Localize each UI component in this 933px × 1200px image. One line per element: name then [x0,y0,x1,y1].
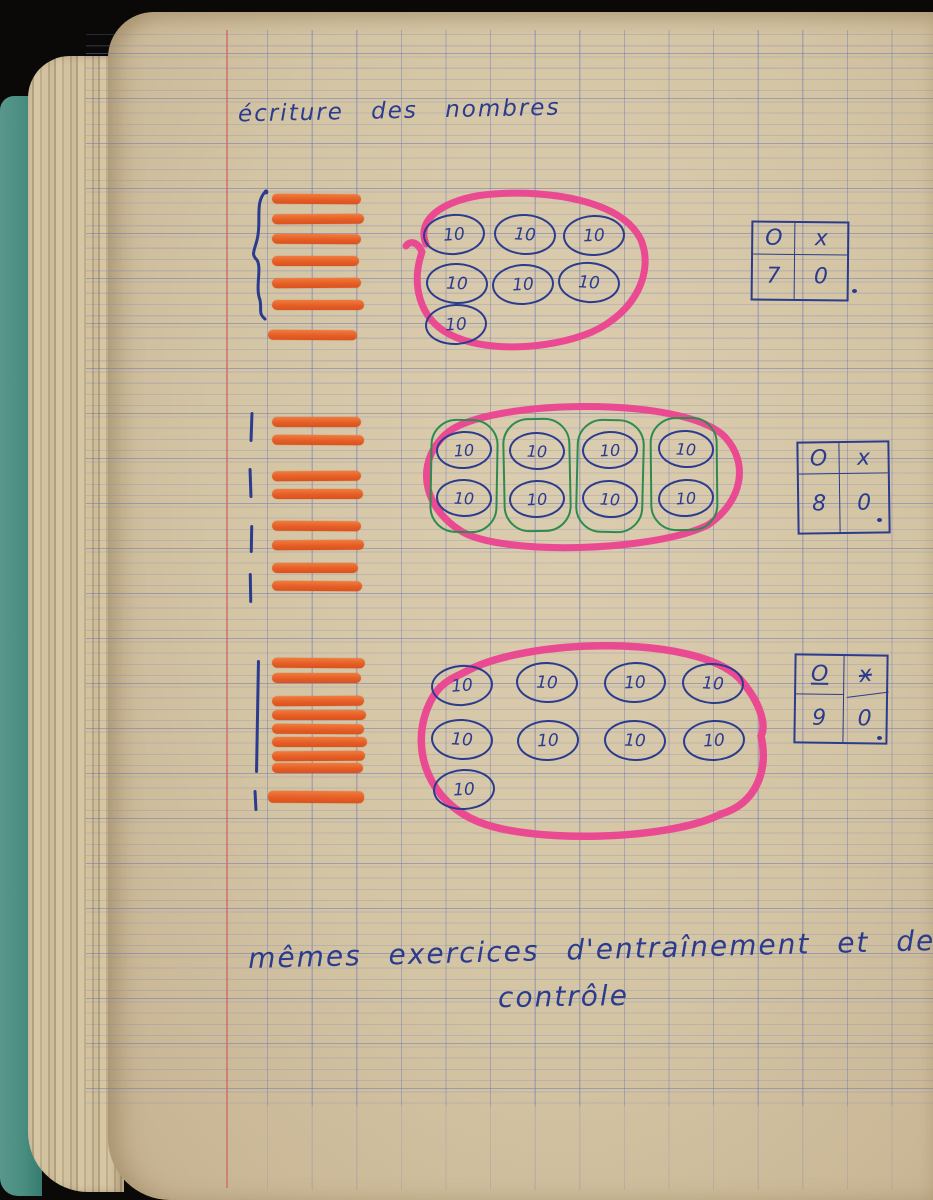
place-value-table-70: O x 7 0 [751,220,850,301]
table-value-units: 0 [795,255,847,300]
brace-icon [250,188,272,322]
tally-bar [272,710,366,720]
ten-label: 10 [453,488,474,508]
place-value-table-90: O x 9 0 [793,653,888,744]
ten-label: 10 [526,441,547,461]
ten-label: 10 [703,730,726,751]
table-value-tens: 8 [799,474,841,532]
tally-bar [272,300,364,310]
notebook-scan: écriture des nombres 10 10 10 10 10 10 1… [0,0,933,1200]
table-header-tens: O [753,223,796,255]
ten-label: 10 [675,439,696,459]
ten-label: 10 [702,673,725,694]
tally-bar [272,489,363,499]
ten-label: 10 [599,489,620,509]
ten-label: 10 [675,488,696,508]
tally-bar [268,791,364,804]
table-header-units: x [842,654,889,698]
ten-label: 10 [443,224,466,245]
ten-label: 10 [526,489,547,509]
ten-label: 10 [445,314,468,335]
ten-label: 10 [583,225,605,246]
tally-bar [272,673,361,683]
ten-label: 10 [453,779,476,800]
tally-bar [272,234,361,244]
table-value-tens: 9 [795,694,843,742]
tally-bar [272,563,358,573]
ten-label: 10 [624,672,646,693]
tally-bar [272,763,363,773]
ten-label: 10 [446,273,468,294]
ten-label: 10 [599,440,620,460]
tally-bar [272,737,367,747]
ten-label: 10 [578,272,601,293]
table-value-units: 0 [840,474,889,533]
table-header-units: x [839,442,887,474]
tally-bar [272,658,365,668]
tally-bar [268,330,357,341]
ten-label: 10 [453,440,474,460]
tally-bar [272,471,361,481]
ten-label: 10 [451,675,474,696]
tally-bar [272,214,364,224]
tally-bar [272,435,364,446]
ten-label: 10 [536,672,558,693]
ink-dot [877,736,882,740]
table-header-units: x [795,223,847,255]
ink-dot [852,289,857,293]
footer-text-line2: contrôle [498,979,629,1014]
ten-label: 10 [624,730,646,751]
tally-bar [272,540,364,551]
tally-bar [272,194,361,205]
table-header-tens: O [796,655,844,694]
ten-label: 10 [514,224,537,245]
tally-bar [272,751,365,761]
ten-label: 10 [537,730,559,751]
tally-bar [272,417,361,427]
tally-bar [272,278,361,289]
ink-dot [877,518,882,522]
ten-label: 10 [451,729,474,750]
tally-bar [272,696,364,706]
tally-bar [272,521,361,531]
table-value-tens: 7 [753,254,796,299]
table-header-tens: O [798,443,839,475]
tally-bar [272,256,359,266]
ten-label: 10 [512,274,535,295]
tally-bar [272,724,364,734]
tally-bar [272,581,362,591]
